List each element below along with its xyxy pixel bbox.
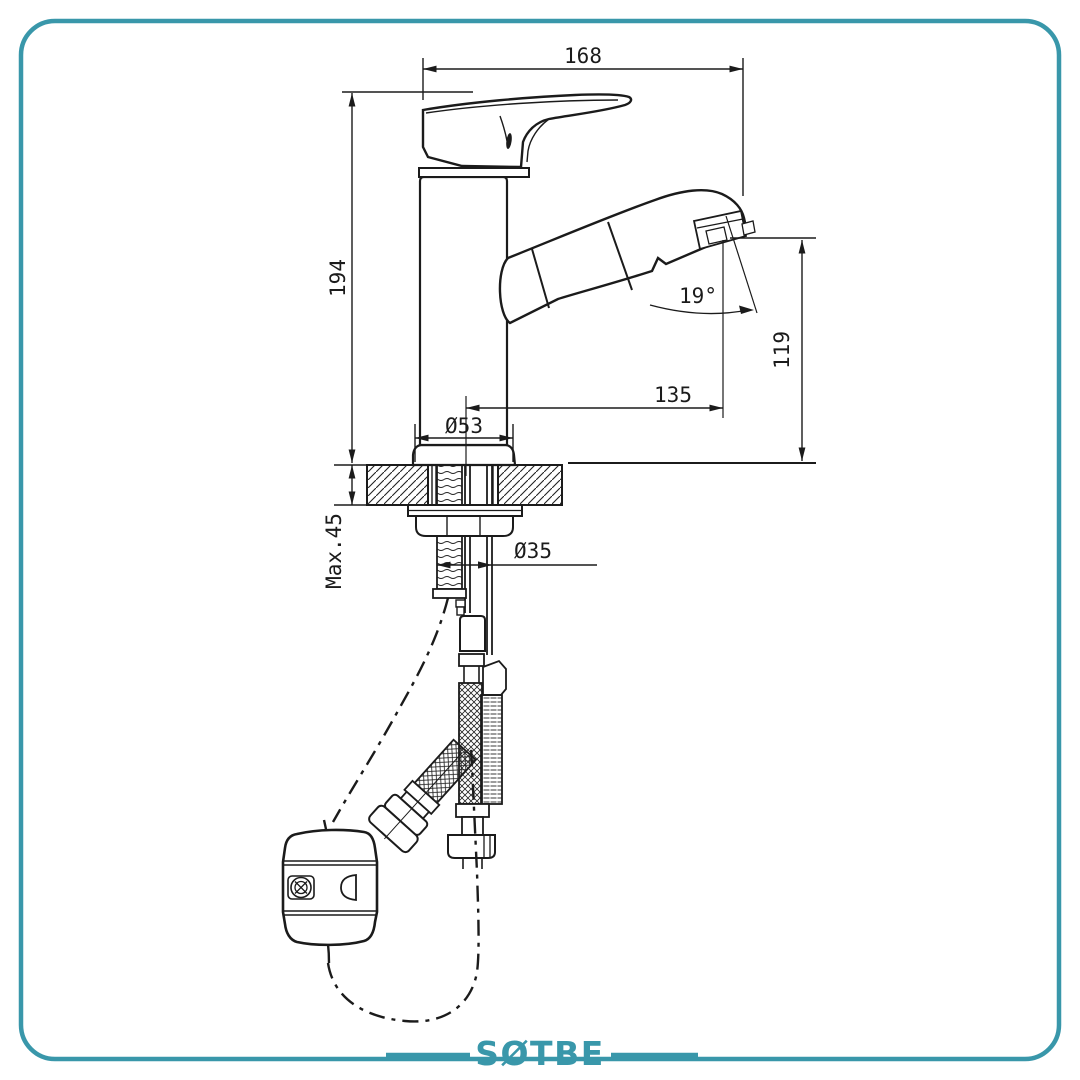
hose-end-nut — [448, 804, 495, 869]
brand-footer: SØTBE — [386, 1034, 698, 1073]
dim-label-spout-angle: 19° — [679, 284, 717, 308]
second-hose — [481, 661, 506, 804]
dim-label-max-deck-thickness: Max.45 — [322, 513, 346, 589]
faucet-outline — [413, 94, 755, 465]
hose-counterweight — [283, 820, 377, 963]
faucet-body — [420, 177, 507, 445]
dim-label-total-height: 194 — [326, 259, 350, 297]
threaded-shank — [433, 465, 466, 615]
faucet-base — [413, 445, 515, 465]
dim-label-base-diameter: Ø53 — [445, 414, 483, 438]
cartridge-cap — [419, 168, 529, 177]
brand-logo: SØTBE — [475, 1034, 605, 1073]
technical-drawing-canvas: 168 194 119 135 Ø53 Ø35 Max.45 19° SØTBE — [0, 0, 1080, 1080]
weight-screw-icon — [288, 876, 314, 899]
dim-label-spout-reach: 135 — [654, 383, 692, 407]
dim-label-outlet-height: 119 — [770, 331, 794, 369]
mounting-nut — [408, 505, 522, 536]
dim-label-shank-diameter: Ø35 — [514, 539, 552, 563]
page: 168 194 119 135 Ø53 Ø35 Max.45 19° SØTBE — [0, 0, 1080, 1080]
dim-label-overall-length: 168 — [564, 44, 602, 68]
